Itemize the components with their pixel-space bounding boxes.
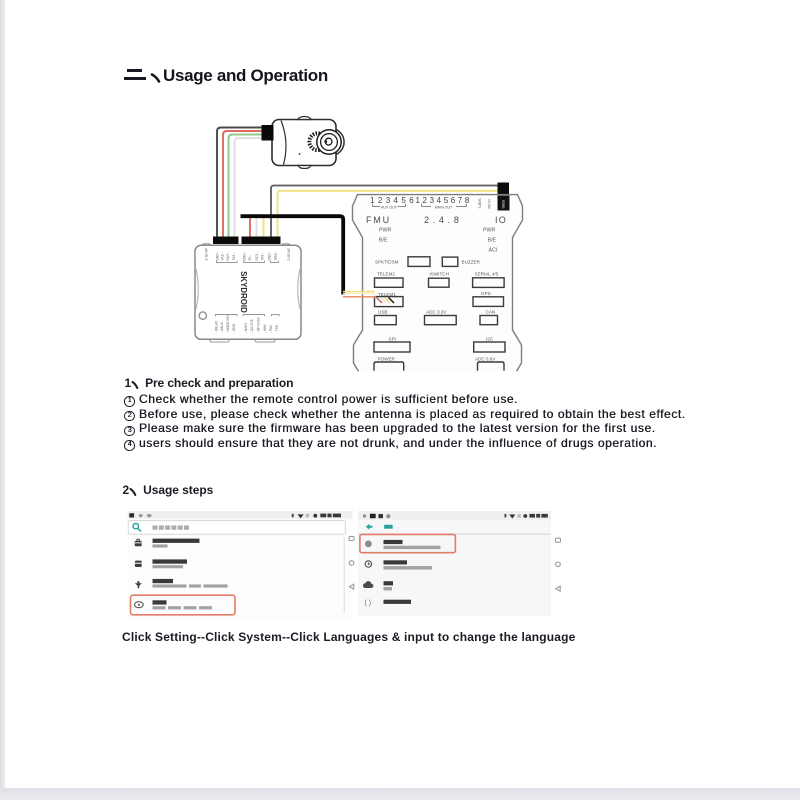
svg-text:B/E: B/E bbox=[488, 238, 497, 244]
svg-text:- GND: - GND bbox=[232, 323, 236, 333]
svg-text:TA3 -: TA3 - bbox=[261, 253, 265, 261]
svg-text:- RELAY: - RELAY bbox=[215, 320, 219, 333]
svg-text:ACI: ACI bbox=[489, 248, 498, 254]
svg-text:GND -: GND - bbox=[215, 251, 219, 260]
svg-text:PWR: PWR bbox=[483, 228, 496, 234]
svg-text:RC3 -: RC3 - bbox=[255, 252, 259, 260]
svg-text:B/E: B/E bbox=[379, 238, 388, 244]
svg-text:PWR: PWR bbox=[379, 228, 392, 234]
svg-text:VCC -: VCC - bbox=[221, 252, 225, 261]
svg-text:TELEM2: TELEM2 bbox=[377, 272, 395, 277]
svg-text:ADC 3.3V: ADC 3.3V bbox=[426, 309, 447, 314]
svg-text:- OP CH10: - OP CH10 bbox=[257, 317, 261, 333]
svg-text:MAIN OUT: MAIN OUT bbox=[435, 205, 453, 209]
svg-text:TA3 -: TA3 - bbox=[232, 253, 236, 261]
svg-text:- MODE KEY: - MODE KEY bbox=[226, 313, 230, 333]
svg-text:CAN: CAN bbox=[486, 309, 496, 314]
svg-text:FMU: FMU bbox=[366, 215, 391, 225]
svg-text:- WIM: - WIM bbox=[263, 324, 267, 333]
svg-text:5V -: 5V - bbox=[248, 255, 252, 261]
svg-text:SBUS: SBUS bbox=[502, 200, 506, 209]
svg-text:RU3 -: RU3 - bbox=[226, 252, 230, 260]
svg-text:- TE6: - TE6 bbox=[275, 325, 279, 333]
svg-text:GND -: GND - bbox=[268, 251, 272, 260]
svg-text:SBus -: SBus - bbox=[274, 251, 278, 261]
svg-text:I2C: I2C bbox=[486, 336, 494, 341]
svg-text:ISWITCH: ISWITCH bbox=[430, 272, 449, 277]
svg-text:123456: 123456 bbox=[370, 196, 417, 205]
svg-text:IO: IO bbox=[495, 215, 507, 225]
svg-text:- DA CH5: - DA CH5 bbox=[250, 319, 254, 333]
svg-text:S.BUS: S.BUS bbox=[478, 198, 482, 209]
svg-text:BUZZER: BUZZER bbox=[462, 259, 481, 264]
svg-text:POWER: POWER bbox=[378, 356, 396, 361]
svg-text:( ): ( ) bbox=[365, 600, 372, 607]
svg-text:SPKT/DSM: SPKT/DSM bbox=[375, 259, 399, 264]
svg-text:GPS: GPS bbox=[481, 291, 491, 296]
svg-text:- GALN: - GALN bbox=[220, 322, 224, 333]
svg-text:SPI: SPI bbox=[389, 336, 396, 341]
svg-text:SKYDROID: SKYDROID bbox=[239, 271, 248, 313]
svg-text:RC IN: RC IN bbox=[488, 199, 492, 209]
svg-text:GND -: GND - bbox=[243, 251, 247, 260]
svg-text:1.4G WF: 1.4G WF bbox=[205, 248, 209, 261]
svg-text:USB: USB bbox=[378, 309, 387, 314]
svg-text:ADC 6.6V: ADC 6.6V bbox=[475, 356, 496, 361]
svg-text:- NAVY: - NAVY bbox=[244, 322, 248, 333]
svg-text:2.4G WF: 2.4G WF bbox=[287, 248, 291, 261]
svg-text:12345678: 12345678 bbox=[416, 196, 472, 205]
svg-text:2 . 4 . 8: 2 . 4 . 8 bbox=[424, 215, 459, 225]
svg-text:- PA2: - PA2 bbox=[269, 325, 273, 333]
svg-text:AUX OUT: AUX OUT bbox=[381, 205, 398, 209]
svg-text:SERIAL 4/5: SERIAL 4/5 bbox=[475, 272, 499, 277]
